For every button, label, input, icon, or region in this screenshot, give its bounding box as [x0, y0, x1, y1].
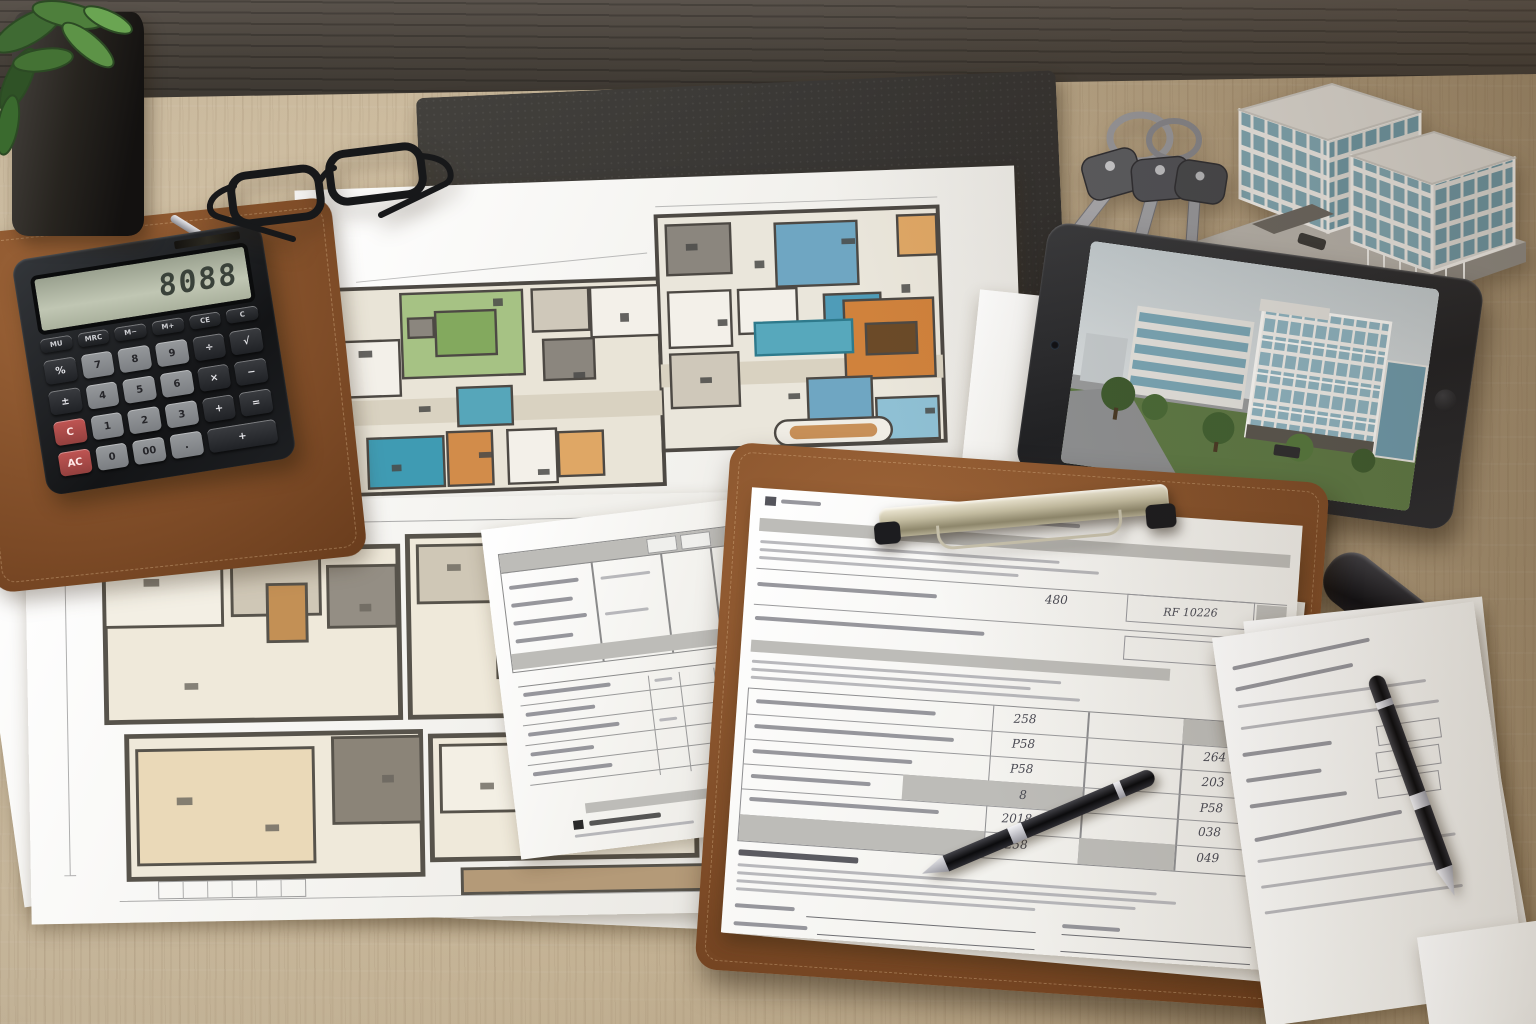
calculator-key: 7 [80, 351, 115, 380]
calculator-key: 8 [117, 345, 152, 374]
calculator-key: . [169, 431, 204, 460]
calculator-key: 4 [85, 381, 120, 410]
calculator-key: ± [48, 387, 83, 416]
form-cell-value: P58 [1012, 737, 1036, 751]
calculator-key: MU [40, 335, 73, 354]
form-cell-value: P58 [1199, 801, 1223, 815]
model-tower-front [1352, 132, 1514, 272]
signature-line [1062, 934, 1252, 948]
bottom-right-sheet-corner [1417, 919, 1536, 1024]
calculator-keypad: %789÷√±456×−C123+=AC000.+ [43, 327, 279, 477]
calculator-key: 9 [155, 339, 190, 368]
calculator-key: M+ [151, 317, 184, 336]
calculator-key: MRC [77, 329, 110, 348]
tablet-camera [1050, 340, 1060, 350]
calculator-key: C [226, 305, 259, 324]
clip-corner-left [874, 521, 902, 545]
calculator-key: M− [114, 323, 147, 342]
eyeglasses [198, 120, 456, 242]
render-main-building [1241, 299, 1391, 456]
calculator-key: % [43, 356, 78, 385]
calculator-key: + [202, 394, 237, 423]
calculator-key: 5 [122, 375, 157, 404]
calculator-key: − [234, 358, 269, 387]
calculator-key: AC [58, 448, 93, 477]
form-cell-value: 8 [1019, 788, 1027, 802]
calculator-key: = [239, 388, 274, 417]
calculator-key: √ [229, 327, 264, 356]
calculator-key: 6 [159, 369, 194, 398]
form-ref-value: RF 10226 [1163, 605, 1218, 619]
calculator-key: CE [188, 311, 221, 330]
sheet-logo-mark [573, 820, 584, 830]
desk-scene: 8088 MUMRCM−M+CEC %789÷√±456×−C123+=AC00… [0, 0, 1536, 1024]
form-cell-value: 049 [1196, 851, 1219, 865]
calculator-display-value: 8088 [158, 256, 239, 304]
form-cell-value: P58 [1010, 762, 1034, 776]
form-cell-value: 258 [1013, 712, 1036, 726]
calculator-key: 2 [127, 406, 162, 435]
form-cell-value: 264 [1203, 750, 1226, 764]
calculator-key: ÷ [192, 333, 227, 362]
form-cell-value: 203 [1201, 775, 1224, 789]
signature-line [806, 916, 1036, 933]
form-cell-value: 038 [1197, 825, 1220, 839]
form-table: 258 P58 P58 8 2018 258 264 203 P58 038 0… [737, 687, 1280, 878]
clip-corner-right [1145, 503, 1177, 530]
calculator-key: 3 [164, 400, 199, 429]
calculator-key: 00 [132, 437, 167, 466]
calculator-key: + [206, 419, 278, 454]
render-left-building [1125, 306, 1254, 410]
calculator-key: C [53, 418, 88, 447]
calculator: 8088 MUMRCM−M+CEC %789÷√±456×−C123+=AC00… [11, 222, 297, 496]
form-handwritten-header: 480 [1045, 593, 1068, 607]
form-ref-box: RF 10226 [1126, 594, 1256, 631]
form-logo-block [765, 496, 777, 506]
calculator-key: × [197, 363, 232, 392]
clipboard-form-sheet: 480 RF 10226 [721, 487, 1303, 970]
calculator-key: 1 [90, 412, 125, 441]
plant-leaves [0, 0, 223, 165]
calculator-key: 0 [95, 442, 130, 471]
tablet-home-button [1433, 388, 1458, 413]
